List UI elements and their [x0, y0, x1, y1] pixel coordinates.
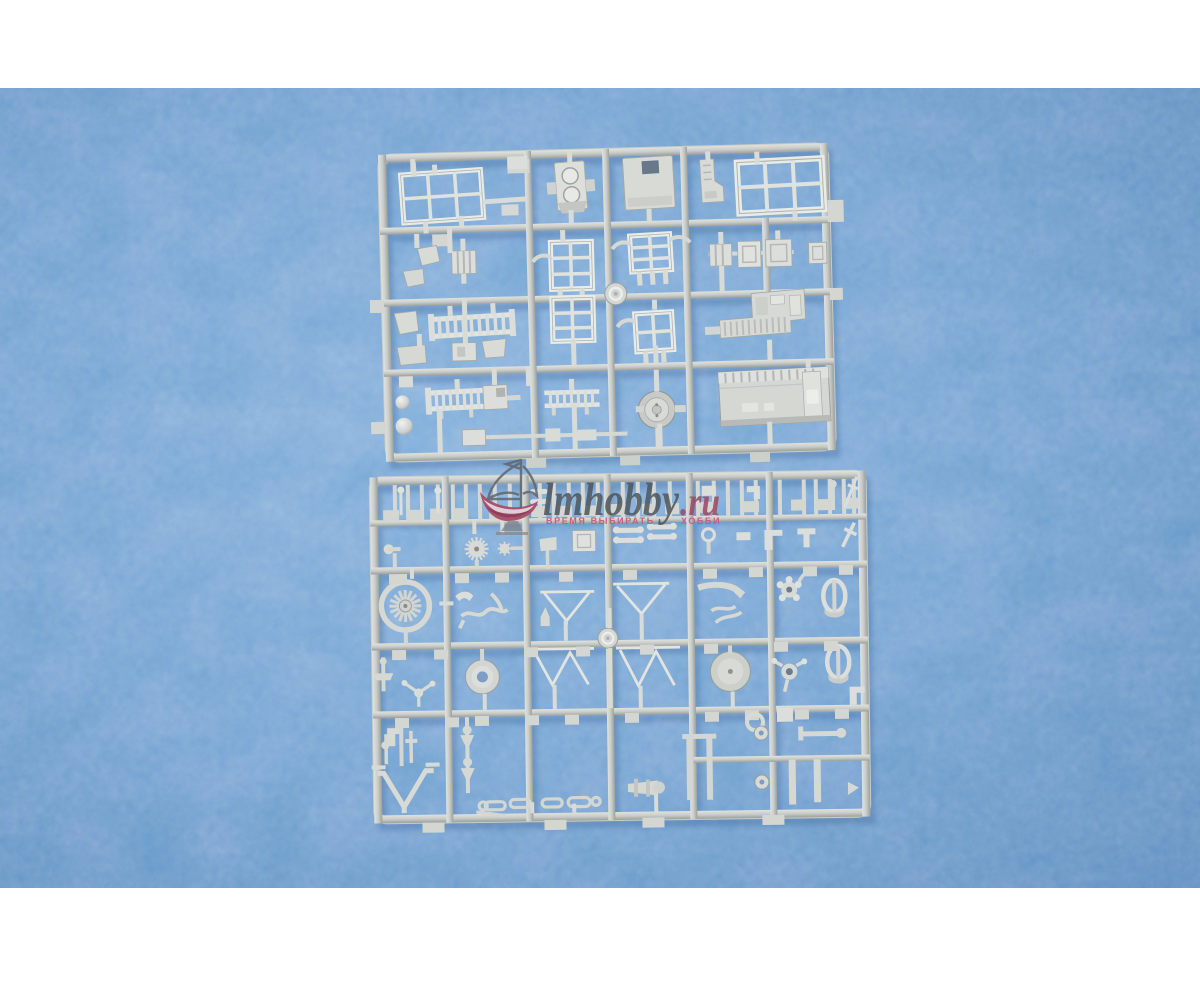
- svg-text:ХОББИ: ХОББИ: [681, 516, 721, 526]
- svg-text:ВРЕМЯ ВЫБИРАТЬ: ВРЕМЯ ВЫБИРАТЬ: [546, 516, 655, 526]
